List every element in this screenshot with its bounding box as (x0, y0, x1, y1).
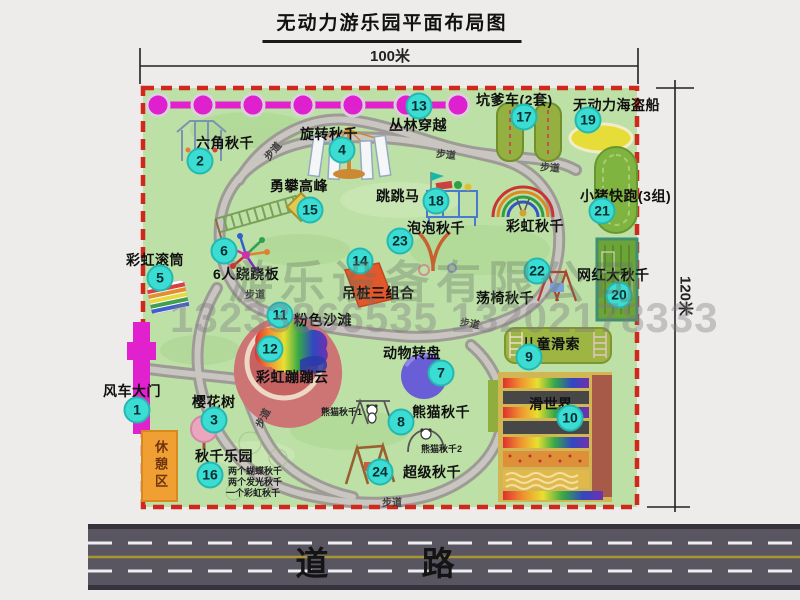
attraction-label-hanging-piles: 吊桩三组合 (342, 283, 415, 303)
attraction-badge-rotating-swing: 4 (329, 137, 356, 164)
attraction-badge-swing-paradise: 16 (197, 462, 224, 489)
attraction-badge-bubble-swing: 23 (387, 228, 414, 255)
attraction-badge-jump-horse: 18 (423, 188, 450, 215)
walkway-label-2: 步道 (435, 145, 456, 162)
attraction-badge-slide-world: 10 (557, 405, 584, 432)
attraction-sublabel-swing-paradise-3: 一个彩虹秋千 (226, 486, 280, 499)
attraction-badge-pit-cars: 17 (511, 104, 538, 131)
attraction-badge-super-swing: 24 (367, 459, 394, 486)
rest-area-label: 休憩区 (151, 440, 170, 491)
attraction-badge-cherry-tree: 3 (201, 407, 228, 434)
dimension-height-label: 120米 (676, 276, 697, 316)
attraction-badge-climb-peak: 15 (297, 197, 324, 224)
attraction-label-jump-horse: 跳跳马 (376, 186, 420, 206)
attraction-label-rainbow-cloud: 彩虹蹦蹦云 (256, 367, 329, 387)
walkway-label-4: 步道 (245, 286, 265, 301)
attraction-badge-pig-run: 21 (589, 198, 616, 225)
walkway-label-6: 步道 (459, 313, 481, 331)
attraction-label-six-seesaw: 6人跷跷板 (213, 264, 279, 284)
page-title: 无动力游乐园平面布局图 (262, 8, 521, 43)
attraction-badge-rainbow-roller: 5 (147, 265, 174, 292)
attraction-badge-six-seesaw: 6 (211, 238, 238, 265)
park-layout-screenshot: 无动力游乐园平面布局图 (0, 0, 800, 600)
attraction-badge-jungle-crossing: 13 (406, 93, 433, 120)
attraction-badge-rainbow-cloud: 12 (257, 336, 284, 363)
attraction-badge-kids-zipline: 9 (516, 344, 543, 371)
attraction-label-animal-turntable: 动物转盘 (383, 343, 441, 363)
walkway-label-7: 步道 (382, 494, 402, 509)
attraction-label-bubble-swing: 泡泡秋千 (407, 218, 465, 238)
walkway-label-3: 步道 (540, 158, 561, 174)
attraction-badge-pink-beach: 11 (267, 302, 294, 329)
attraction-label-pink-beach: 粉色沙滩 (294, 310, 352, 330)
attraction-label-chair-swing: 荡椅秋千 (476, 288, 534, 308)
attraction-badge-hanging-piles: 14 (347, 248, 374, 275)
attraction-label-super-swing: 超级秋千 (403, 462, 461, 482)
attraction-badge-panda-swing: 8 (388, 409, 415, 436)
attraction-badge-hexagon-swing: 2 (187, 148, 214, 175)
attraction-badge-pirate-ship: 19 (575, 107, 602, 134)
attraction-label-climb-peak: 勇攀高峰 (270, 176, 328, 196)
attraction-sublabel-panda-swing-1: 熊猫秋千1 (321, 405, 362, 418)
road-label: 道 路 (295, 537, 496, 585)
attraction-badge-windmill-gate: 1 (124, 397, 151, 424)
attraction-badge-net-big-swing: 20 (606, 282, 633, 309)
dimension-width-label: 100米 (370, 45, 410, 66)
attraction-badge-chair-swing: 22 (524, 258, 551, 285)
slide-world-icon (488, 372, 612, 502)
attraction-label-panda-swing: 熊猫秋千 (412, 402, 470, 422)
attraction-sublabel-panda-swing-2: 熊猫秋千2 (421, 442, 462, 455)
attraction-label-rainbow-swing: 彩虹秋千 (506, 216, 564, 236)
attraction-badge-animal-turntable: 7 (428, 360, 455, 387)
